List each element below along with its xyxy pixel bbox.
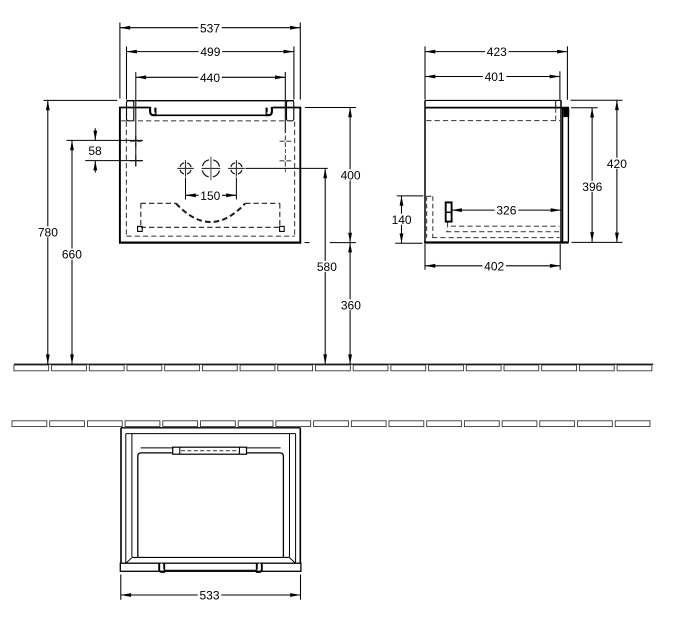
svg-text:402: 402 bbox=[484, 259, 504, 273]
svg-text:360: 360 bbox=[341, 298, 361, 312]
svg-text:150: 150 bbox=[200, 189, 220, 203]
svg-text:533: 533 bbox=[199, 589, 219, 603]
svg-text:140: 140 bbox=[392, 213, 412, 227]
svg-text:400: 400 bbox=[341, 169, 361, 183]
svg-text:660: 660 bbox=[62, 248, 82, 262]
svg-text:440: 440 bbox=[200, 71, 220, 85]
svg-text:423: 423 bbox=[487, 45, 507, 59]
svg-text:580: 580 bbox=[317, 260, 337, 274]
svg-text:537: 537 bbox=[200, 21, 220, 35]
svg-text:499: 499 bbox=[200, 45, 220, 59]
svg-text:780: 780 bbox=[38, 225, 58, 239]
svg-text:401: 401 bbox=[485, 70, 505, 84]
svg-text:420: 420 bbox=[607, 157, 627, 171]
svg-text:396: 396 bbox=[582, 180, 602, 194]
svg-text:326: 326 bbox=[496, 204, 516, 218]
svg-text:58: 58 bbox=[88, 144, 102, 158]
